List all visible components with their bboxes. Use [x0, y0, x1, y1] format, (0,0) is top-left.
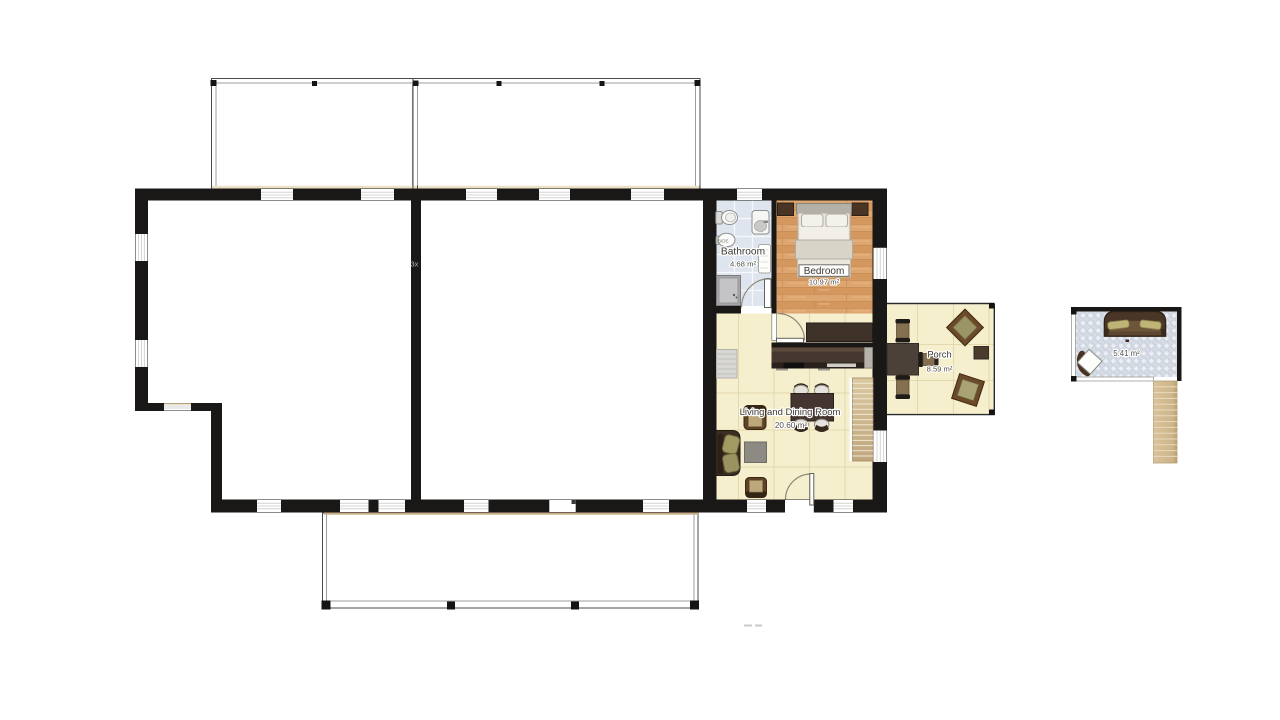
svg-text:10.97 m²: 10.97 m² — [809, 278, 840, 287]
svg-text:BIDE: BIDE — [718, 239, 729, 244]
svg-text:Porch: Porch — [927, 350, 951, 360]
svg-text:4.68 m²: 4.68 m² — [730, 260, 757, 269]
svg-text:8.59 m²: 8.59 m² — [927, 365, 953, 374]
svg-text:3x: 3x — [411, 260, 419, 269]
svg-text:20.60 m²: 20.60 m² — [775, 421, 808, 430]
svg-text:Bathroom: Bathroom — [721, 247, 765, 258]
svg-text:Bedroom: Bedroom — [804, 266, 845, 277]
svg-text:5.41 m²: 5.41 m² — [1113, 349, 1140, 358]
svg-text:Living and Dining Room: Living and Dining Room — [740, 407, 841, 418]
